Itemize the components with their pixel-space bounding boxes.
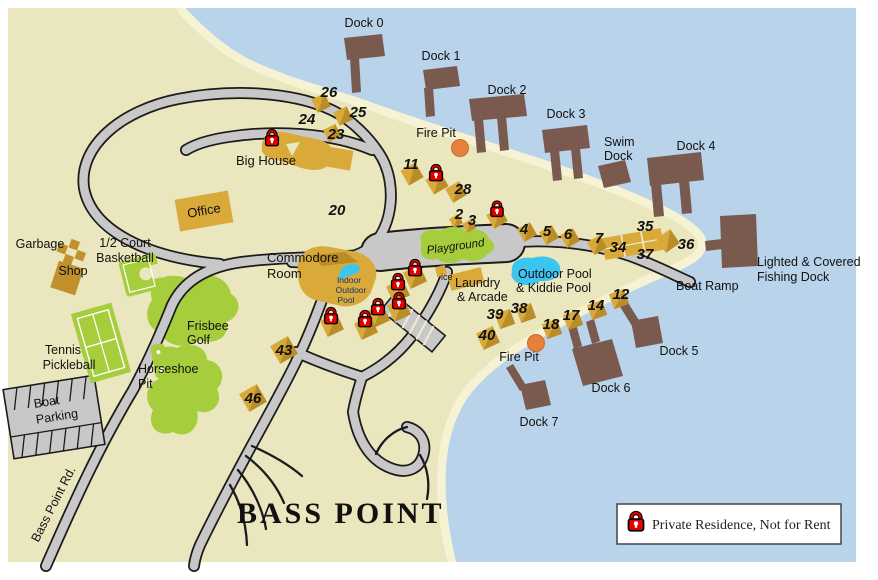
site-3-label: 3	[468, 212, 477, 229]
fire-pit-south-label: Fire Pit	[499, 350, 539, 364]
shop-label: Shop	[58, 264, 87, 278]
frisbee-label-line1: Frisbee	[187, 319, 229, 333]
site-12-label: 12	[613, 286, 630, 303]
site-6-label: 6	[564, 226, 573, 243]
frisbee-label-line2: Golf	[187, 333, 210, 347]
site-34-label: 34	[610, 239, 627, 256]
legend: Private Residence, Not for Rent	[617, 504, 841, 544]
dock-6-label: Dock 6	[592, 381, 631, 395]
site-5-label: 5	[543, 223, 552, 240]
site-14-label: 14	[588, 297, 605, 314]
site-37-label: 37	[637, 246, 654, 263]
dock-4-label: Dock 4	[677, 139, 716, 153]
site-36-label: 36	[678, 236, 695, 253]
site-43-label: 43	[275, 342, 293, 359]
site-46-label: 46	[244, 390, 262, 407]
map-title: BASS POINT	[237, 497, 445, 530]
commodore-label-line1: Commodore	[267, 250, 339, 265]
site-24-label: 24	[298, 111, 316, 128]
dock-1-label: Dock 1	[422, 49, 461, 63]
dock-5-label: Dock 5	[660, 344, 699, 358]
indoor-pool-label-line2: Outdoor	[336, 285, 367, 295]
commodore-label-line2: Room	[267, 266, 302, 281]
site-23-label: 23	[327, 126, 345, 143]
dock-2-label: Dock 2	[488, 83, 527, 97]
garbage-label: Garbage	[16, 237, 65, 251]
fire-pit-north-label: Fire Pit	[416, 126, 456, 140]
basketball-label-line2: Basketball	[96, 251, 154, 265]
horseshoe-label-line1: Horseshoe	[138, 362, 198, 376]
ice-label: ice	[441, 272, 453, 282]
fishing-dock-label-line2: Fishing Dock	[757, 270, 830, 284]
indoor-pool-label-line3: Pool	[337, 295, 354, 305]
site-20-label: 20	[328, 202, 346, 219]
indoor-pool-label-line1: Indoor	[337, 275, 361, 285]
outdoor-pool-label-line2: & Kiddie Pool	[516, 281, 591, 295]
site-39-label: 39	[487, 306, 504, 323]
outdoor-pool-label-line1: Outdoor Pool	[518, 267, 592, 281]
fishing-dock-label-line1: Lighted & Covered	[757, 255, 861, 269]
big-house-label: Big House	[236, 153, 296, 168]
fire-pit-south	[528, 335, 545, 352]
site-7-label: 7	[595, 230, 604, 247]
site-25-label: 25	[349, 104, 367, 121]
basketball-label-line1: 1/2 Court	[99, 236, 151, 250]
bass-point-map: Boat Parking Playground	[0, 0, 878, 580]
site-4-label: 4	[519, 221, 529, 238]
site-35-label: 35	[637, 218, 654, 235]
dock-7-label: Dock 7	[520, 415, 559, 429]
legend-text: Private Residence, Not for Rent	[652, 518, 831, 533]
laundry-label-line2: & Arcade	[457, 290, 508, 304]
dock-3-label: Dock 3	[547, 107, 586, 121]
site-17-label: 17	[563, 307, 580, 324]
boat-parking-lot: Boat Parking	[3, 375, 105, 459]
swim-dock-label-line2: Dock	[604, 149, 633, 163]
tennis-label-line1: Tennis	[45, 343, 81, 357]
playground: Playground	[421, 227, 495, 263]
site-18-label: 18	[543, 316, 560, 333]
tennis-label-line2: Pickleball	[43, 358, 96, 372]
site-26-label: 26	[320, 84, 338, 101]
horseshoe-label-line2: Pit	[138, 377, 153, 391]
site-40-label: 40	[478, 327, 496, 344]
site-2-label: 2	[454, 206, 464, 223]
dock-0-label: Dock 0	[345, 16, 384, 30]
boat-ramp-label: Boat Ramp	[676, 279, 739, 293]
laundry-label-line1: Laundry	[455, 276, 501, 290]
site-11-label: 11	[403, 156, 419, 173]
site-38-label: 38	[511, 300, 528, 317]
site-28-label: 28	[454, 181, 472, 198]
swim-dock-label-line1: Swim	[604, 135, 635, 149]
fire-pit-north	[452, 140, 469, 157]
